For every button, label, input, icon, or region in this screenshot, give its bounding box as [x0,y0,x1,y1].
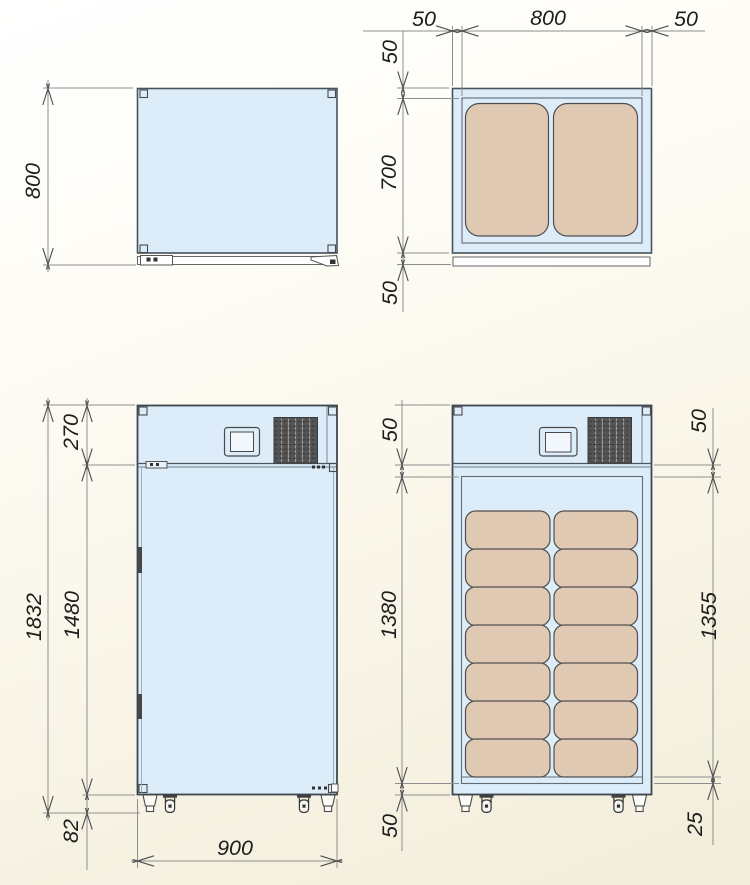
dim-label-base-height: 82 [59,819,83,843]
dim-label-overall-height: 1832 [22,593,46,641]
dim-label-wall-bottom: 50 [378,814,402,838]
caster-wheel [297,795,311,813]
content-block [554,549,638,588]
latch-pin [322,466,325,469]
content-block [466,701,551,740]
content-block [554,104,638,237]
dim-label-wall-top: 50 [378,418,402,442]
leveling-foot [143,795,157,812]
dim-label-top-section: 270 [59,414,83,451]
content-block [554,663,638,702]
latch-pin [324,787,327,790]
content-block [466,549,551,588]
controller-screen [546,433,572,453]
dim-label-depth: 800 [21,163,45,199]
content-block [554,739,638,777]
content-block [466,511,551,550]
content-block [554,625,638,664]
dim-label-overall-width: 900 [217,836,253,860]
technical-drawing: 800 50 800 50 50 700 50 [0,0,750,885]
drawing-canvas: 800 50 800 50 50 700 50 [0,0,750,885]
plan-view [453,89,652,267]
door-hinge [138,694,142,719]
leveling-foot [633,795,647,812]
leveling-foot [321,795,335,812]
latch-pin [318,787,321,790]
vent-grille [274,418,318,464]
controller-screen [231,432,254,452]
dim-label-inner-width: 800 [530,6,566,30]
latch-pin [317,466,320,469]
dim-label-clearance-top: 50 [687,409,711,433]
hinge-pin [150,463,153,466]
front-view [138,406,339,813]
dim-label-interior-height: 1380 [377,591,401,639]
dim-label-door-thickness: 50 [378,281,402,305]
door-strip [453,257,650,266]
hinge-pin [154,258,158,262]
dim-label-door-height: 1480 [60,591,84,639]
dim-label-wall-back: 50 [378,40,402,64]
content-block [554,587,638,626]
caster-wheel [163,795,177,813]
dim-label-wall-right: 50 [674,7,698,31]
vent-grille [588,418,632,464]
content-block [466,663,551,702]
content-block [554,511,638,550]
dim-label-usable-height: 1355 [697,591,721,640]
dim-label-inner-depth: 700 [377,155,401,191]
hinge-pin [147,258,151,262]
caster-wheel [612,795,626,813]
latch-pin [312,787,315,790]
side-view-dimensions: 800 [21,80,136,272]
leveling-foot [459,795,473,812]
door-latch-bottom [332,784,339,792]
content-block [554,701,638,740]
latch-pin [330,260,336,265]
hinge-pin [156,463,159,466]
dim-label-wall-left: 50 [412,7,436,31]
latch-pin [312,466,315,469]
content-block [466,587,551,626]
door-hinge [138,547,142,573]
caster-wheel [480,795,494,813]
side-view [138,89,339,267]
content-block [466,625,551,664]
dim-label-floor-plate: 25 [683,811,707,837]
content-block [466,104,549,237]
content-block [466,739,551,777]
front-open-view [453,406,652,813]
side-panel [138,89,338,254]
